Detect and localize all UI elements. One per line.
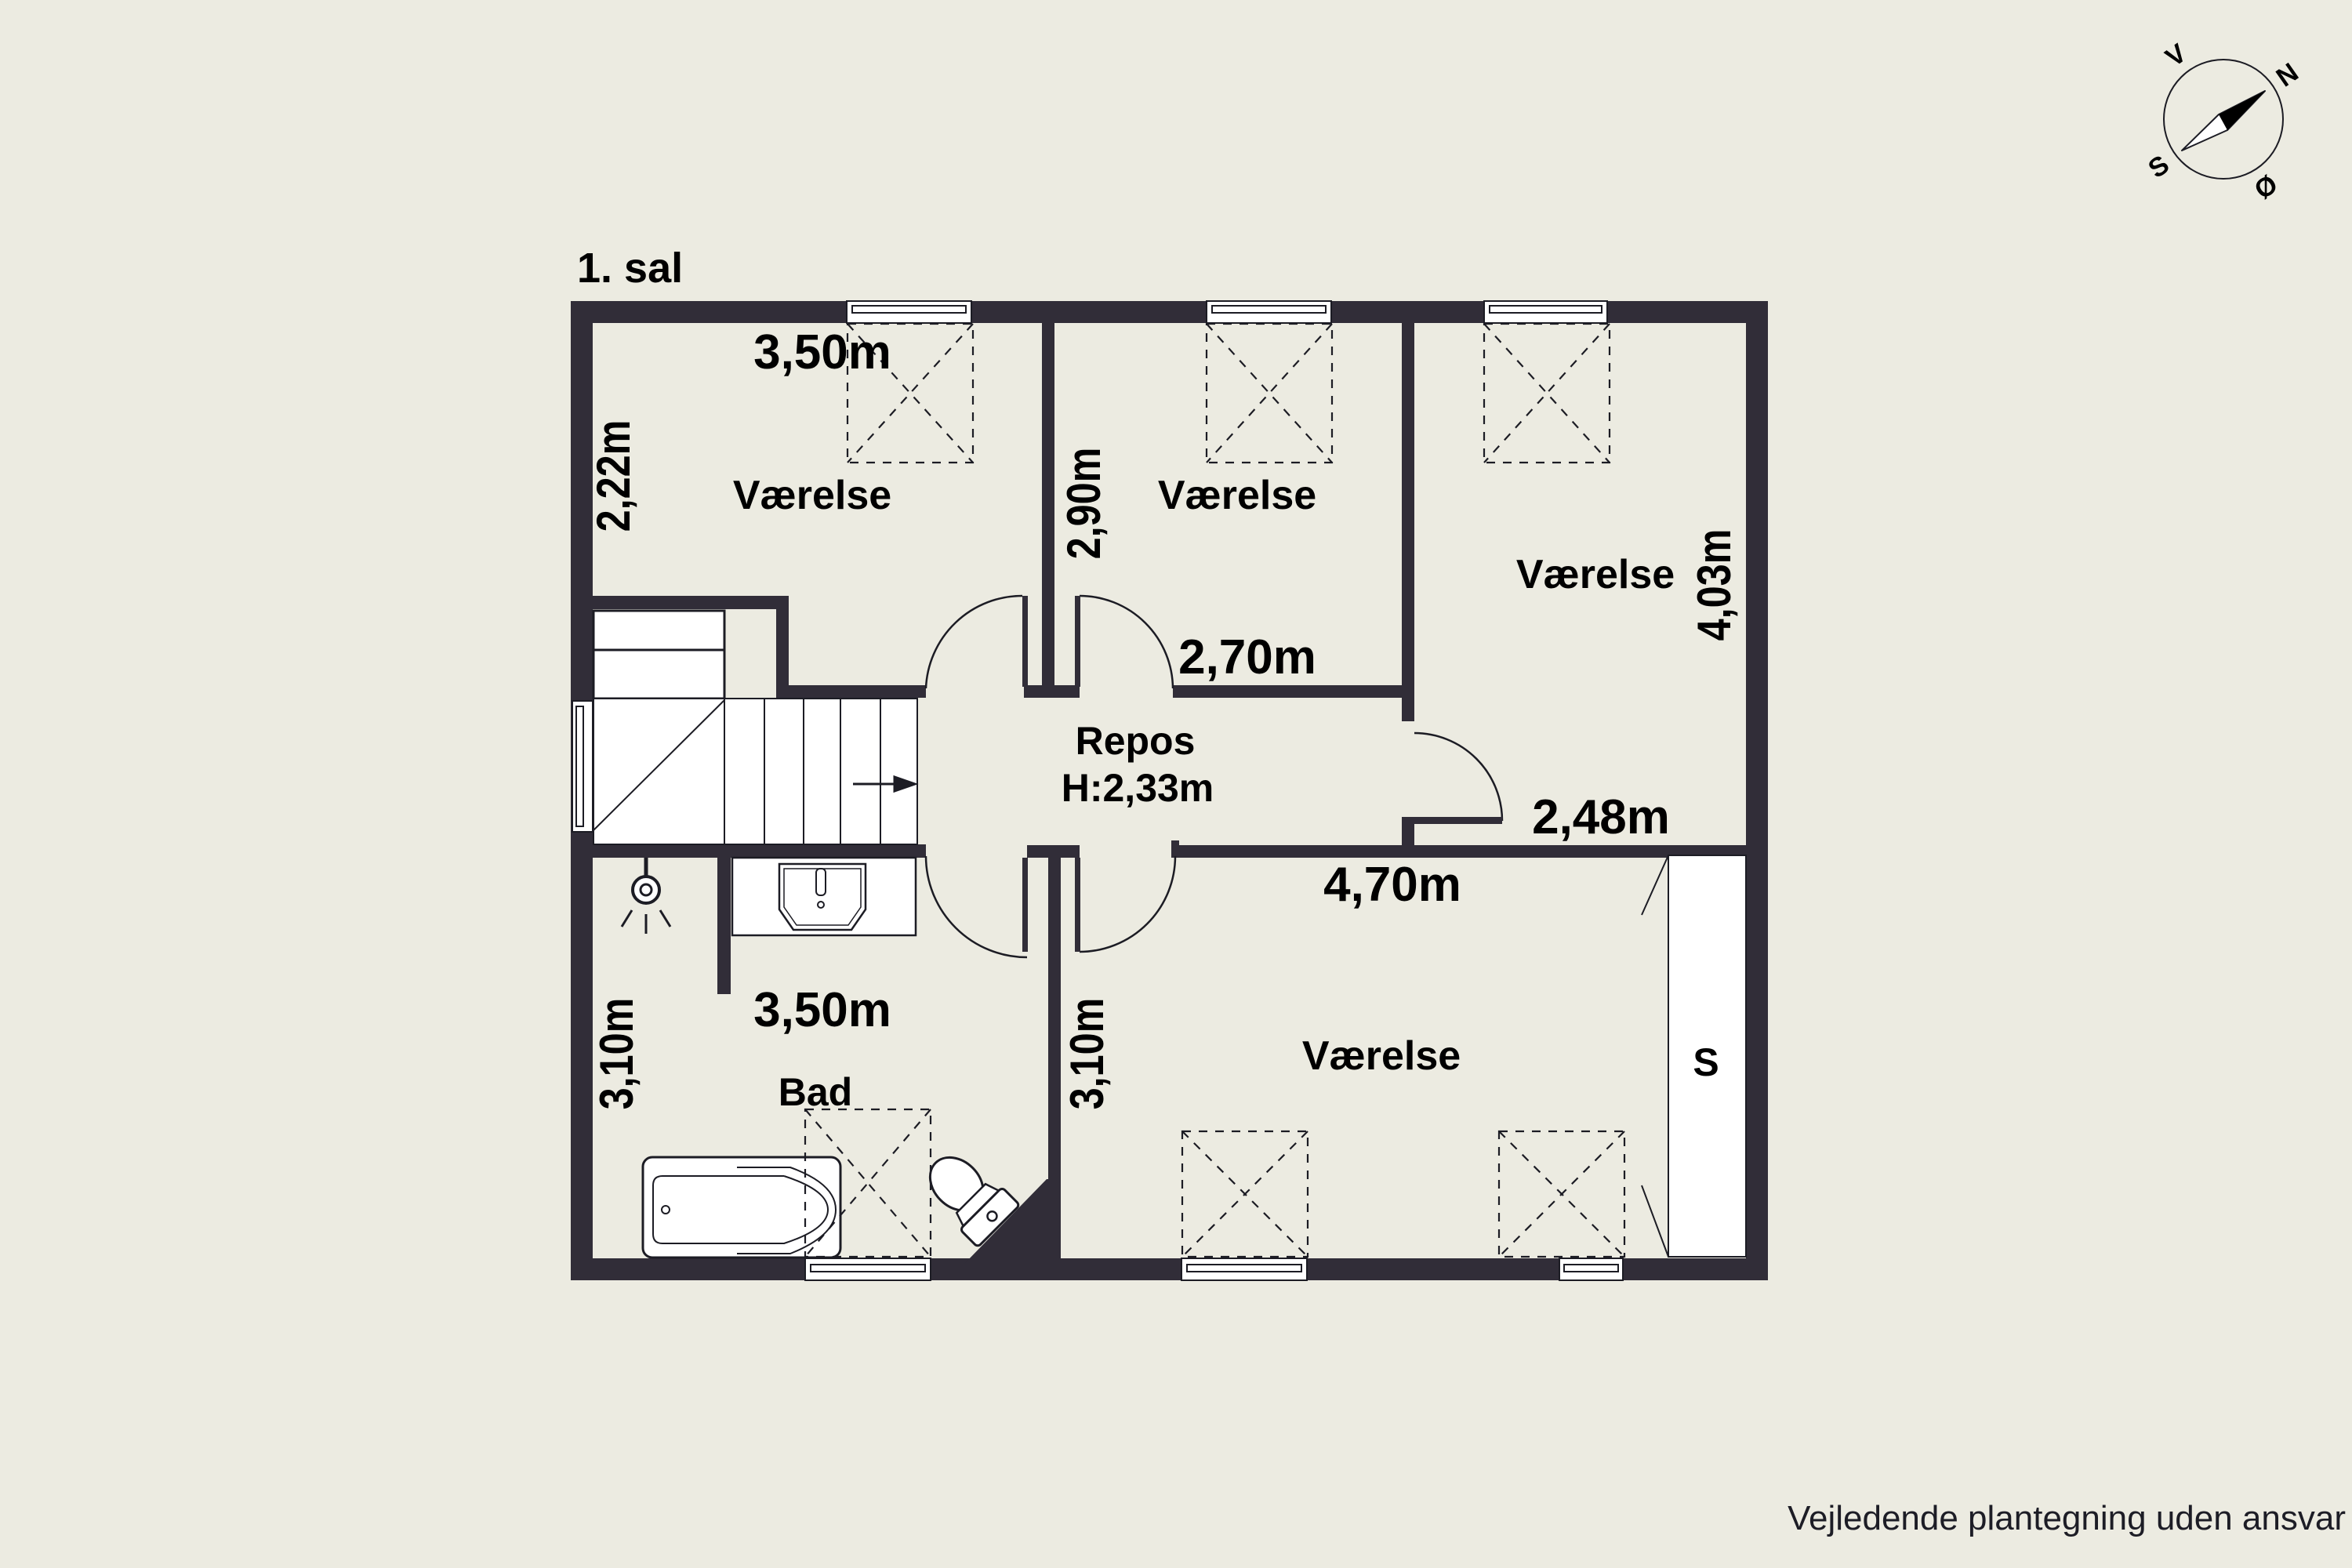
svg-text:4,03m: 4,03m	[1688, 529, 1740, 641]
svg-text:Værelse: Værelse	[1516, 552, 1675, 597]
svg-text:3,50m: 3,50m	[753, 983, 891, 1037]
svg-text:Værelse: Værelse	[733, 473, 891, 518]
svg-text:Repos: Repos	[1076, 719, 1196, 763]
svg-text:2,70m: 2,70m	[1178, 630, 1316, 684]
svg-text:2,48m: 2,48m	[1532, 790, 1670, 844]
svg-text:1. sal: 1. sal	[577, 245, 683, 292]
svg-text:2,22m: 2,22m	[587, 420, 640, 532]
svg-text:3,10m: 3,10m	[590, 998, 643, 1110]
svg-text:Værelse: Værelse	[1302, 1033, 1461, 1079]
svg-text:4,70m: 4,70m	[1323, 858, 1461, 912]
svg-text:H:2,33m: H:2,33m	[1062, 766, 1214, 810]
svg-text:3,50m: 3,50m	[753, 325, 891, 379]
svg-text:3,10m: 3,10m	[1061, 998, 1113, 1110]
svg-text:2,90m: 2,90m	[1058, 448, 1110, 560]
svg-text:Vejledende plantegning uden an: Vejledende plantegning uden ansvar	[1788, 1499, 2346, 1537]
svg-text:Bad: Bad	[779, 1070, 852, 1114]
svg-text:Værelse: Værelse	[1158, 473, 1316, 518]
svg-text:S: S	[1693, 1040, 1719, 1084]
